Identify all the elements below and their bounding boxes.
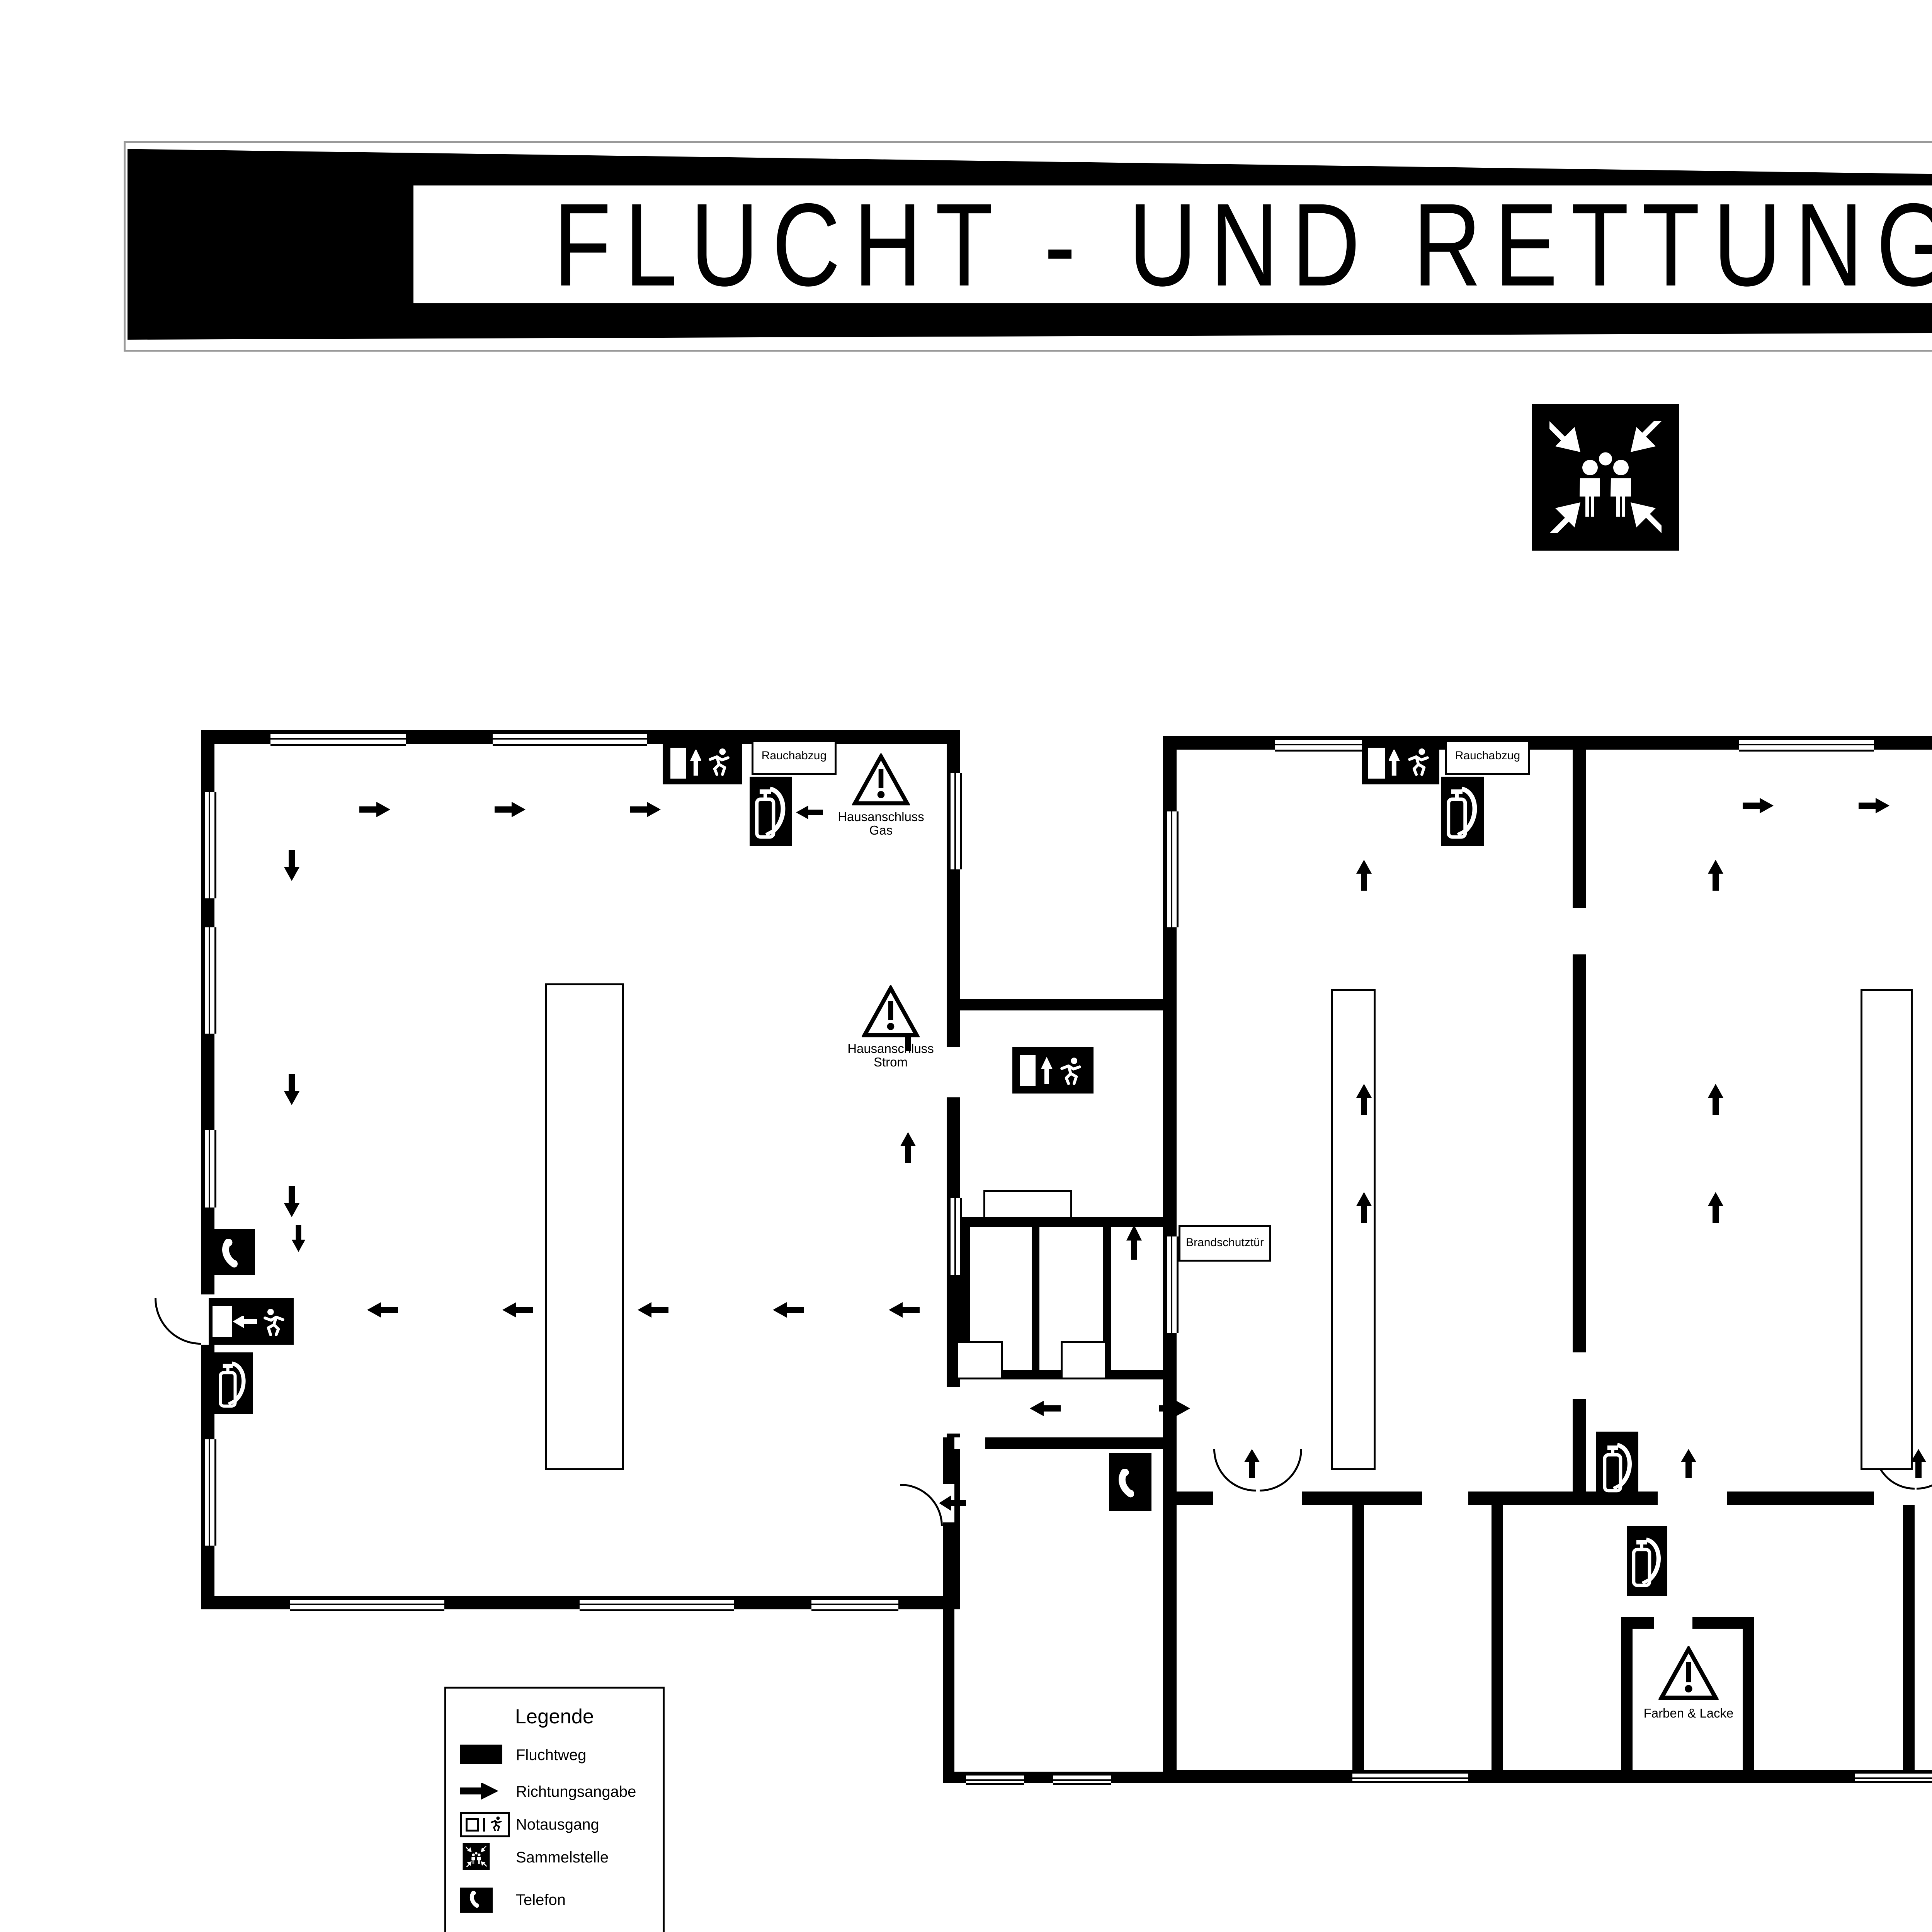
direction-arrow-up (1126, 1225, 1142, 1260)
equipment-box (956, 1341, 1003, 1379)
notausgang-icon (460, 1811, 510, 1837)
direction-arrow-left (502, 1302, 533, 1318)
door-gap (1654, 1617, 1692, 1629)
page-title: FLUCHT - UND RETTUNGSPLAN (554, 176, 1932, 313)
farben-lacke-label: Farben & Lacke (1615, 1708, 1762, 1722)
telephone-icon (213, 1229, 255, 1275)
legend-label: Richtungsangabe (516, 1782, 636, 1800)
wall (1621, 1617, 1633, 1770)
window (203, 1130, 216, 1207)
door-arc (1260, 1449, 1302, 1492)
hausanschluss-strom-label: Hausanschluss Strom (811, 1043, 970, 1072)
door-gap (954, 1437, 985, 1449)
legend-row: Löschdecke (460, 1930, 653, 1932)
legend-row: Sammelstelle (460, 1841, 653, 1872)
rauchabzug-label: Rauchabzug (752, 740, 837, 775)
window (290, 1598, 444, 1611)
warning-triangle-icon (852, 753, 910, 806)
exit-sign (209, 1298, 294, 1345)
exit-sign (1012, 1047, 1094, 1094)
warning-triangle-icon (862, 985, 920, 1037)
direction-arrow-up (1708, 1084, 1723, 1115)
legend-row: Notausgang (460, 1808, 653, 1839)
wall (1743, 1617, 1754, 1770)
door-arc (155, 1298, 201, 1345)
direction-arrow-down (284, 1074, 299, 1105)
direction-arrow-right (1859, 798, 1889, 813)
legend-label: Fluchtweg (516, 1746, 586, 1763)
legend-label: Telefon (516, 1891, 566, 1908)
assembly-point-icon (1532, 404, 1679, 551)
fire-extinguisher-icon (1627, 1526, 1667, 1596)
exit-sign (1362, 740, 1439, 784)
window (1165, 811, 1179, 927)
wall (960, 999, 1177, 1010)
door-gap (1874, 1492, 1932, 1505)
fire-extinguisher-icon (1441, 777, 1484, 846)
direction-arrow-up (1708, 860, 1723, 891)
direction-arrow-left (367, 1302, 398, 1318)
exit-arrow-left-icon (233, 1315, 258, 1328)
door-gap (1213, 1492, 1302, 1505)
legend-row: Telefon (460, 1884, 653, 1915)
legend-title: Legende (446, 1706, 663, 1729)
direction-arrow-down (284, 850, 299, 881)
hausanschluss-gas-label: Hausanschluss Gas (802, 811, 960, 840)
direction-arrow-left (773, 1302, 804, 1318)
telephone-icon (1109, 1453, 1151, 1511)
sammelstelle-icon (460, 1843, 510, 1870)
escape-plan-page: FLUCHT - UND RETTUNGSPLAN FRANKE FILTER … (0, 0, 1932, 1932)
running-man-icon (1057, 1056, 1086, 1085)
direction-arrow-left (889, 1302, 920, 1318)
window (203, 927, 216, 1034)
warning-triangle-icon (1658, 1646, 1719, 1700)
rauchabzug-label-text: Rauchabzug (762, 752, 827, 763)
window (493, 732, 647, 746)
fire-extinguisher-icon (211, 1352, 253, 1414)
storage-rack (1331, 989, 1376, 1470)
window (1739, 738, 1874, 752)
legend-label: Sammelstelle (516, 1848, 609, 1866)
storage-rack (545, 983, 624, 1470)
wall (960, 1217, 1177, 1227)
brandschutztuer-label-text: Brandschutztür (1186, 1238, 1264, 1249)
window (1053, 1774, 1111, 1785)
door-gap (947, 1387, 960, 1434)
fire-extinguisher-icon (750, 777, 792, 846)
exit-door-glyph (670, 747, 686, 778)
richtungsangabe-arrow-icon (460, 1782, 510, 1800)
door-gap (1573, 1352, 1586, 1399)
exit-arrow-up-icon (1041, 1057, 1053, 1084)
window (203, 1439, 216, 1546)
door-arc (900, 1484, 943, 1526)
rauchabzug-label-text: Rauchabzug (1455, 752, 1520, 763)
door-gap (1573, 908, 1586, 954)
legend-row: Richtungsangabe (460, 1776, 653, 1806)
counter-sink (983, 1190, 1072, 1221)
exit-sign (663, 740, 742, 784)
door-gap (1422, 1492, 1468, 1505)
wall (1903, 1505, 1915, 1770)
running-man-icon (706, 748, 735, 777)
exit-arrow-up-icon (690, 749, 702, 776)
wall (1163, 1770, 1932, 1783)
legend-row: Fluchtweg (460, 1739, 653, 1770)
direction-arrow-up (1356, 860, 1372, 891)
direction-arrow-right (359, 802, 390, 817)
window (1352, 1772, 1468, 1783)
direction-arrow-up (1708, 1192, 1723, 1223)
window (1165, 1236, 1179, 1333)
window (966, 1774, 1024, 1785)
direction-arrow-up (1681, 1449, 1696, 1478)
window (203, 792, 216, 898)
door-gap (1658, 1492, 1727, 1505)
direction-arrow-left (638, 1302, 668, 1318)
legend-label: Notausgang (516, 1815, 599, 1833)
exit-door-glyph (213, 1305, 231, 1338)
exit-door-glyph (1020, 1054, 1036, 1087)
exit-arrow-up-icon (1388, 749, 1400, 776)
direction-arrow-left (1030, 1401, 1061, 1416)
fire-extinguisher-icon (1596, 1432, 1638, 1501)
window (270, 732, 406, 746)
legend: Legende Fluchtweg Richtungsangabe Notaus… (444, 1687, 665, 1932)
rauchabzug-label: Rauchabzug (1445, 740, 1530, 775)
storage-rack (1861, 989, 1913, 1470)
direction-arrow-down (284, 1186, 299, 1217)
exit-door-glyph (1369, 747, 1384, 778)
direction-arrow-down (292, 1225, 305, 1252)
window (811, 1598, 898, 1611)
fluchtweg-swatch-icon (460, 1745, 510, 1764)
direction-arrow-right (495, 802, 526, 817)
direction-arrow-up (900, 1132, 916, 1163)
wall (1492, 1505, 1503, 1770)
window (1855, 1772, 1932, 1783)
equipment-box (1061, 1341, 1107, 1379)
wall (1032, 1227, 1039, 1370)
telefon-icon (460, 1887, 510, 1912)
brandschutztuer-label: Brandschutztür (1179, 1225, 1271, 1262)
direction-arrow-right (630, 802, 661, 817)
window (580, 1598, 734, 1611)
running-man-icon (260, 1307, 289, 1336)
wall (1352, 1505, 1364, 1770)
running-man-icon (1404, 748, 1433, 777)
direction-arrow-right (1743, 798, 1774, 813)
title-box: FLUCHT - UND RETTUNGSPLAN (413, 185, 1932, 303)
